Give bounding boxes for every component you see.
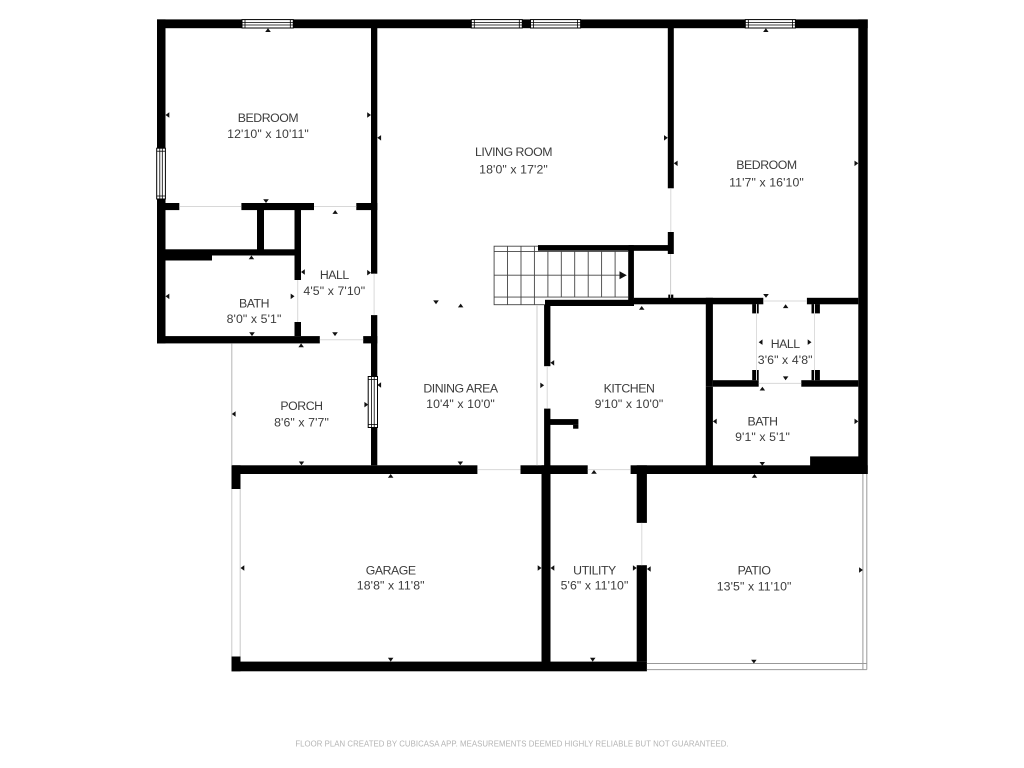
- svg-text:PATIO: PATIO: [738, 563, 771, 577]
- svg-text:BATH: BATH: [239, 296, 269, 310]
- svg-text:FLOOR PLAN CREATED BY CUBICASA: FLOOR PLAN CREATED BY CUBICASA APP. MEAS…: [295, 739, 728, 748]
- svg-text:BATH: BATH: [747, 415, 777, 429]
- svg-text:12'10" x 10'11": 12'10" x 10'11": [227, 127, 309, 141]
- svg-text:18'0" x 17'2": 18'0" x 17'2": [479, 162, 548, 176]
- svg-text:9'1" x 5'1": 9'1" x 5'1": [735, 430, 790, 444]
- svg-text:LIVING ROOM: LIVING ROOM: [475, 145, 552, 159]
- svg-text:4'5" x 7'10": 4'5" x 7'10": [303, 284, 365, 298]
- svg-text:PORCH: PORCH: [280, 399, 322, 413]
- svg-text:BEDROOM: BEDROOM: [736, 158, 797, 172]
- svg-text:KITCHEN: KITCHEN: [604, 381, 655, 395]
- svg-text:18'8" x 11'8": 18'8" x 11'8": [357, 579, 425, 593]
- svg-text:HALL: HALL: [320, 268, 350, 282]
- svg-text:GARAGE: GARAGE: [366, 563, 416, 577]
- svg-text:10'4" x 10'0": 10'4" x 10'0": [426, 397, 495, 411]
- svg-text:HALL: HALL: [771, 337, 801, 351]
- svg-text:BEDROOM: BEDROOM: [238, 111, 299, 125]
- svg-text:3'6" x 4'8": 3'6" x 4'8": [758, 353, 813, 367]
- svg-text:8'0" x 5'1": 8'0" x 5'1": [227, 312, 282, 326]
- svg-text:UTILITY: UTILITY: [573, 563, 616, 577]
- svg-text:5'6" x 11'10": 5'6" x 11'10": [561, 579, 629, 593]
- svg-text:DINING AREA: DINING AREA: [423, 381, 499, 395]
- svg-text:9'10" x 10'0": 9'10" x 10'0": [595, 397, 664, 411]
- svg-text:13'5" x 11'10": 13'5" x 11'10": [717, 580, 792, 594]
- svg-text:8'6" x 7'7": 8'6" x 7'7": [274, 415, 329, 429]
- svg-text:11'7" x 16'10": 11'7" x 16'10": [729, 175, 804, 189]
